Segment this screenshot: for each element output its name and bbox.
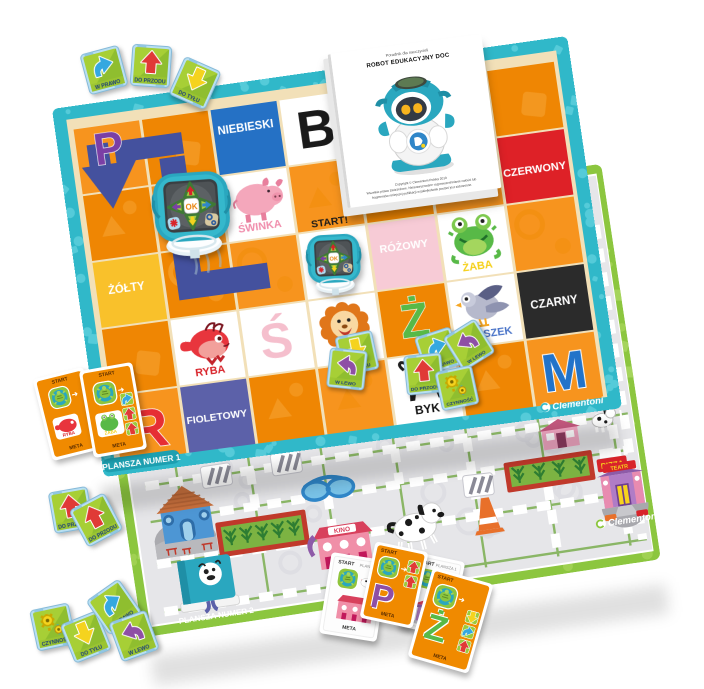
svg-text:OK: OK <box>329 256 338 262</box>
svg-text:M: M <box>538 340 591 405</box>
svg-text:OK: OK <box>185 202 198 212</box>
